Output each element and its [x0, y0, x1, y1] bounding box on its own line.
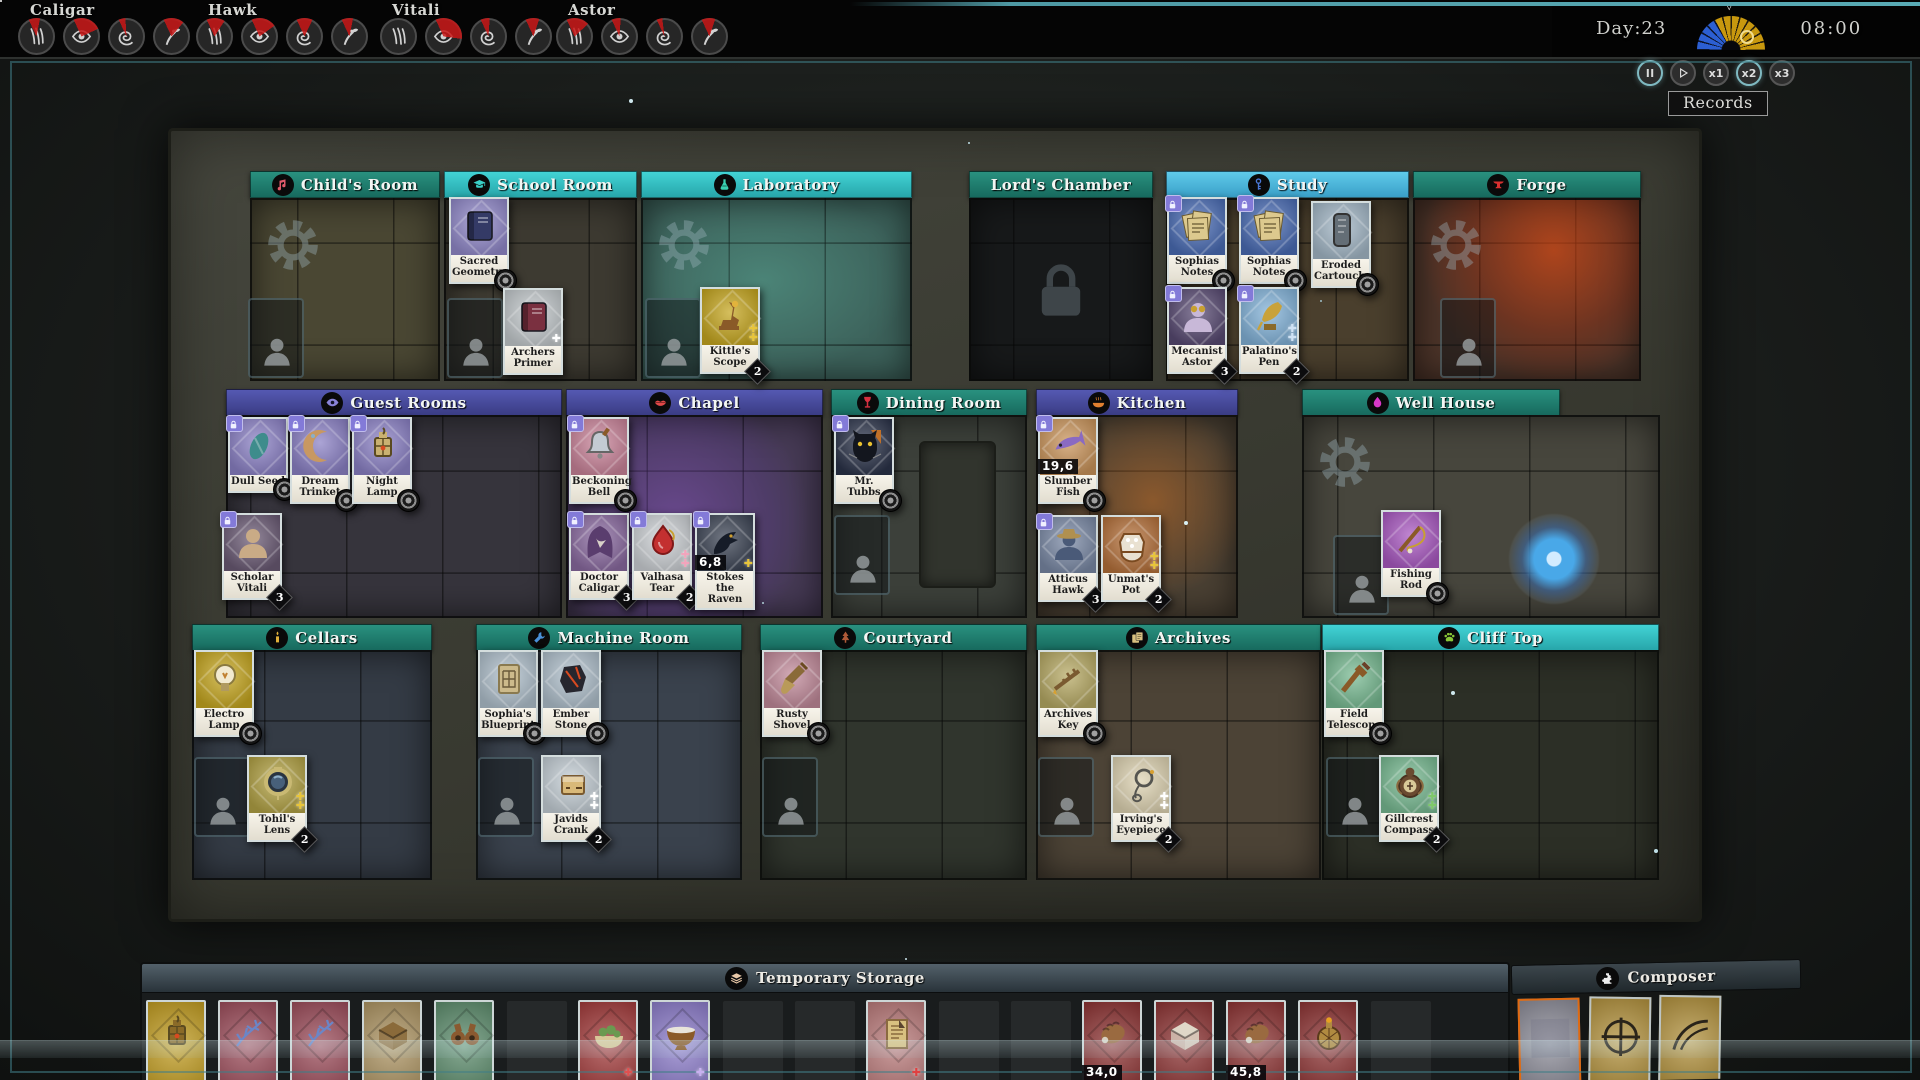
day-time-panel: Day:23 ▽ 08:00 [1552, 0, 1920, 57]
dial-badge-icon[interactable] [614, 489, 637, 512]
card-art-raven: 6,8✚ [695, 513, 755, 571]
game-screen: Child's RoomSchool RoomSacred Geometry✚A… [0, 0, 1920, 1080]
room-floor-lords-chamber[interactable] [969, 198, 1153, 381]
lock-icon [1237, 285, 1254, 302]
dial-badge-icon[interactable] [1426, 582, 1449, 605]
card-slumber-fish[interactable]: 19,6Slumber Fish [1038, 417, 1098, 504]
room-name: School Room [497, 176, 613, 194]
room-banner-kitchen[interactable]: Kitchen [1036, 389, 1238, 416]
card-night-lamp[interactable]: Night Lamp [352, 417, 412, 504]
torch-icon [331, 18, 368, 55]
lock-icon [350, 415, 367, 432]
plus-marks: ✚✚ [1288, 325, 1297, 343]
glowing-well [1504, 509, 1604, 609]
card-dream-trinket[interactable]: Dream Trinket [290, 417, 350, 504]
stat-meter [601, 18, 638, 55]
room-name: Laboratory [743, 176, 840, 194]
card-palatino-s-pen[interactable]: ✚✚Palatino's Pen2 [1239, 287, 1299, 374]
room-name: Well House [1396, 394, 1496, 412]
spiral-icon [470, 18, 507, 55]
card-ember-stone[interactable]: Ember Stone [541, 650, 601, 737]
archive-cards-icon [1126, 627, 1148, 649]
lantern-card[interactable] [146, 1000, 206, 1080]
stat-meter [470, 18, 507, 55]
room-name: Child's Room [301, 176, 418, 194]
room-name: Cliff Top [1467, 629, 1543, 647]
room-banner-dining-room[interactable]: Dining Room [831, 389, 1027, 416]
stat-meter [108, 18, 145, 55]
lips-icon [649, 392, 671, 414]
gear-watermark-icon [1425, 214, 1487, 276]
empty-storage-slot[interactable] [794, 1000, 856, 1080]
card-field-telescope[interactable]: Field Telescope [1324, 650, 1384, 737]
card-art-seed [228, 417, 288, 475]
stat-meter [331, 18, 368, 55]
spiral-icon [286, 18, 323, 55]
room-banner-forge[interactable]: Forge [1413, 171, 1641, 198]
wine-glass-icon [857, 392, 879, 414]
card-value: 6,8 [695, 555, 726, 570]
dial-badge-icon[interactable] [397, 489, 420, 512]
lock-icon [226, 415, 243, 432]
card-gillcrest-compass[interactable]: ✚✚Gillcrest Compass2 [1379, 755, 1439, 842]
composer-title: Composer [1627, 967, 1716, 987]
card-art-bell [569, 417, 629, 475]
stat-meter [18, 18, 55, 55]
composer-banner: Composer [1511, 959, 1802, 995]
stat-meter [63, 18, 100, 55]
branch-card[interactable] [290, 1000, 350, 1080]
room-name: Lord's Chamber [991, 176, 1132, 194]
card-tohil-s-lens[interactable]: ✚✚Tohil's Lens2 [247, 755, 307, 842]
lock-icon [832, 415, 849, 432]
spiral-icon [646, 18, 683, 55]
diagram-crosshair-card[interactable] [1588, 996, 1652, 1080]
lock-icon [630, 511, 647, 528]
room-name: Courtyard [863, 629, 952, 647]
dial-badge-icon[interactable] [586, 722, 609, 745]
person-slot[interactable] [834, 515, 890, 595]
top-accent-line [850, 2, 1920, 6]
room-banner-chapel[interactable]: Chapel [566, 389, 823, 416]
empty-storage-slot[interactable] [722, 1000, 784, 1080]
lock-icon [693, 511, 710, 528]
room-name: Kitchen [1117, 394, 1187, 412]
plus-marks: ✚ [552, 335, 561, 344]
seed-box-card[interactable] [362, 1000, 422, 1080]
room-banner-cliff-top[interactable]: Cliff Top [1322, 624, 1659, 651]
binoculars-card[interactable] [434, 1000, 494, 1080]
card-value: 19,6 [1038, 459, 1078, 474]
card-art-keytool [1038, 650, 1098, 708]
torch-icon [515, 18, 552, 55]
card-value: 45,8 [1226, 1065, 1266, 1080]
room-name: Cellars [295, 629, 357, 647]
plus-marks: ✚ [624, 1069, 633, 1078]
diagram-arc-card[interactable] [1658, 995, 1722, 1080]
person-slot[interactable] [1326, 757, 1382, 837]
package-card[interactable] [1154, 1000, 1214, 1080]
bowl-card[interactable]: ✚ [650, 1000, 710, 1080]
empty-storage-slot[interactable] [1010, 1000, 1072, 1080]
dial-badge-icon[interactable] [807, 722, 830, 745]
lock-icon [1237, 195, 1254, 212]
day-night-dial: ▽ [1688, 4, 1774, 54]
stat-meter [241, 18, 278, 55]
card-valhasa-tear[interactable]: ✚✚Valhasa Tear2 [632, 513, 692, 600]
card-art-lens: ✚✚ [247, 755, 307, 813]
watch-eye-icon [241, 18, 278, 55]
lock-icon [1036, 415, 1053, 432]
card-sophias-notes[interactable]: Sophias Notes [1167, 197, 1227, 284]
card-art-compass: ✚✚ [1379, 755, 1439, 813]
card-atticus-hawk[interactable]: Atticus Hawk3 [1038, 515, 1098, 602]
droplet-icon [1367, 392, 1389, 414]
torch-icon [153, 18, 190, 55]
person-slot[interactable] [447, 298, 503, 378]
empty-storage-slot[interactable] [938, 1000, 1000, 1080]
card-art-goggle-bust [1167, 287, 1227, 345]
card-art-bulb [194, 650, 254, 708]
card-mr-tubbs[interactable]: Mr. Tubbs [834, 417, 894, 504]
claws-icon [380, 18, 417, 55]
room-banner-cellars[interactable]: Cellars [192, 624, 432, 651]
card-art-lantern [352, 417, 412, 475]
soup-bowl-icon [1088, 392, 1110, 414]
claws-icon [196, 18, 233, 55]
card-art-tablet [1311, 201, 1371, 259]
room-name: Guest Rooms [350, 394, 466, 412]
card-archers-primer[interactable]: ✚Archers Primer [503, 288, 563, 375]
dial-badge-icon[interactable] [879, 489, 902, 512]
stat-meter [425, 18, 462, 55]
room-banner-archives[interactable]: Archives [1036, 624, 1321, 651]
empty-storage-slot[interactable] [1370, 1000, 1432, 1080]
plus-marks: ✚✚ [749, 325, 758, 343]
person-slot[interactable] [762, 757, 818, 837]
card-art-moon [290, 417, 350, 475]
room-name: Machine Room [557, 629, 689, 647]
card-art-bust [222, 513, 282, 571]
lock-icon [1165, 285, 1182, 302]
card-rusty-shovel[interactable]: Rusty Shovel [762, 650, 822, 737]
sun-icon [1740, 30, 1754, 44]
card-art-quill: ✚✚ [1239, 287, 1299, 345]
eye-icon [321, 392, 343, 414]
stat-meter [286, 18, 323, 55]
card-art-crank: ✚✚ [541, 755, 601, 813]
dial-badge-icon[interactable] [1083, 489, 1106, 512]
stat-meter [515, 18, 552, 55]
plus-marks: ✚✚ [590, 793, 599, 811]
room-banner-machine-room[interactable]: Machine Room [476, 624, 742, 651]
top-separator [0, 57, 1920, 59]
card-art-book [449, 197, 509, 255]
room-banner-study[interactable]: Study [1166, 171, 1409, 198]
card-art-hat-bust [1038, 515, 1098, 573]
plus-marks: ✚✚ [296, 793, 305, 811]
card-unmat-s-pot[interactable]: ✚✚Unmat's Pot2 [1101, 515, 1161, 602]
card-art-hood [569, 513, 629, 571]
card-value: 34,0 [1082, 1065, 1122, 1080]
dial-badge-icon[interactable] [1369, 722, 1392, 745]
plus-marks: ✚ [744, 560, 753, 569]
person-slot[interactable] [194, 757, 250, 837]
pause-button[interactable] [1637, 60, 1663, 86]
card-sophia-s-blueprint[interactable]: Sophia's Blueprint [478, 650, 538, 737]
card-art-stone [541, 650, 601, 708]
card-fishing-rod[interactable]: Fishing Rod [1381, 510, 1441, 597]
lock-icon [288, 415, 305, 432]
card-eroded-cartouche[interactable]: Eroded Cartouche [1311, 201, 1371, 288]
watch-eye-icon [425, 18, 462, 55]
gear-watermark-icon [262, 214, 324, 276]
grad-cap-icon [468, 174, 490, 196]
day-label: Day:23 [1596, 18, 1666, 39]
stat-meter [196, 18, 233, 55]
lock-icon [1036, 513, 1053, 530]
scroll-card[interactable]: ✚ [866, 1000, 926, 1080]
claws-icon [18, 18, 55, 55]
plus-marks: ✚✚ [1428, 793, 1437, 811]
anvil-icon [1487, 174, 1509, 196]
card-archives-key[interactable]: Archives Key [1038, 650, 1098, 737]
dial-badge-icon[interactable] [1356, 273, 1379, 296]
card-title: Archers Primer [503, 346, 563, 375]
character-stats [380, 18, 552, 55]
room-name: Study [1277, 176, 1327, 194]
dial-badge-icon[interactable] [1083, 722, 1106, 745]
card-art-scope: ✚✚ [700, 287, 760, 345]
grub-card[interactable]: 45,8 [1226, 1000, 1286, 1080]
lock-icon [220, 511, 237, 528]
gear-watermark-icon [653, 214, 715, 276]
person-slot[interactable] [478, 757, 534, 837]
room-banner-laboratory[interactable]: Laboratory [641, 171, 912, 198]
room-banner-courtyard[interactable]: Courtyard [760, 624, 1027, 651]
key-icon [1248, 174, 1270, 196]
flask-icon [714, 174, 736, 196]
card-scholar-vitali[interactable]: Scholar Vitali3 [222, 513, 282, 600]
tree-icon [834, 627, 856, 649]
plus-marks: ✚✚ [1160, 793, 1169, 811]
card-irving-s-eyepiece[interactable]: ✚✚Irving's Eyepiece2 [1111, 755, 1171, 842]
claws-icon [556, 18, 593, 55]
room-name: Forge [1516, 176, 1566, 194]
gear-watermark-icon [1314, 431, 1376, 493]
time-label: 08:00 [1800, 18, 1862, 39]
wrench-icon [528, 627, 550, 649]
room-banner-school-room[interactable]: School Room [444, 171, 637, 198]
grub-card[interactable]: 34,0 [1082, 1000, 1142, 1080]
card-art-book: ✚ [503, 288, 563, 346]
torch-icon [691, 18, 728, 55]
stat-meter [646, 18, 683, 55]
x1-button[interactable]: x1 [1703, 60, 1729, 86]
lock-icon [1165, 195, 1182, 212]
dining-table [919, 441, 996, 588]
music-note-icon [272, 174, 294, 196]
card-art-papers [1167, 197, 1227, 255]
room-name: Archives [1155, 629, 1231, 647]
lock-icon [567, 415, 584, 432]
card-sophias-notes[interactable]: Sophias Notes [1239, 197, 1299, 284]
card-art-fish: 19,6 [1038, 417, 1098, 475]
framed-card[interactable] [1518, 998, 1582, 1080]
lock-watermark-icon [1029, 258, 1093, 322]
character-stats [18, 18, 190, 55]
temporary-storage-panel: Temporary Storage ✚✚✚34,045,8 [140, 962, 1510, 1080]
card-stokes-the-raven[interactable]: 6,8✚Stokes the Raven [695, 513, 755, 610]
room-banner-guest-rooms[interactable]: Guest Rooms [226, 389, 562, 416]
person-slot[interactable] [248, 298, 304, 378]
top-bar: CaligarHawkVitaliAstor Day:23 ▽ 08:00 [0, 0, 1920, 59]
card-title: Stokes the Raven [695, 571, 755, 610]
character-name: Vitali [392, 1, 440, 19]
card-art-blueprint [478, 650, 538, 708]
person-slot[interactable] [1440, 298, 1496, 378]
character-name: Astor [568, 1, 615, 19]
candle-icon [266, 627, 288, 649]
branch-card[interactable] [218, 1000, 278, 1080]
x3-button[interactable]: x3 [1769, 60, 1795, 86]
room-banner-well-house[interactable]: Well House [1302, 389, 1560, 416]
character-name: Caligar [30, 1, 95, 19]
empty-storage-slot[interactable] [506, 1000, 568, 1080]
card-sacred-geometry[interactable]: Sacred Geometry [449, 197, 509, 284]
dial-badge-icon[interactable] [239, 722, 262, 745]
character-name: Hawk [208, 1, 257, 19]
jug-card[interactable] [1298, 1000, 1358, 1080]
play-button[interactable] [1670, 60, 1696, 86]
composer-panel: Composer [1511, 959, 1803, 1080]
card-art-cat [834, 417, 894, 475]
card-art-rod [1381, 510, 1441, 568]
card-beckoning-bell[interactable]: Beckoning Bell [569, 417, 629, 504]
card-art-monocle: ✚✚ [1111, 755, 1171, 813]
storage-banner: Temporary Storage [142, 964, 1508, 993]
person-slot[interactable] [645, 298, 701, 378]
stat-meter [556, 18, 593, 55]
room-banner-lords-chamber[interactable]: Lord's Chamber [969, 171, 1153, 198]
plus-marks: ✚ [696, 1069, 705, 1078]
card-dull-seed[interactable]: Dull Seed [228, 417, 288, 493]
paw-icon [1438, 627, 1460, 649]
card-electro-lamp[interactable]: Electro Lamp [194, 650, 254, 737]
records-button[interactable]: Records [1668, 91, 1768, 116]
card-art-shovel [762, 650, 822, 708]
character-stats [196, 18, 368, 55]
watch-eye-icon [63, 18, 100, 55]
card-doctor-caligar[interactable]: Doctor Caligar3 [569, 513, 629, 600]
card-javids-crank[interactable]: ✚✚Javids Crank2 [541, 755, 601, 842]
card-art-pot: ✚✚ [1101, 515, 1161, 573]
plus-marks: ✚✚ [681, 551, 690, 569]
plus-marks: ✚ [912, 1069, 921, 1078]
watch-eye-icon [601, 18, 638, 55]
card-art-tear: ✚✚ [632, 513, 692, 571]
dial-hub [1697, 16, 1765, 50]
room-banner-childs-room[interactable]: Child's Room [250, 171, 440, 198]
stat-meter [153, 18, 190, 55]
salad-card[interactable]: ✚ [578, 1000, 638, 1080]
character-stats [556, 18, 728, 55]
plus-marks: ✚✚ [1150, 553, 1159, 571]
room-name: Chapel [678, 394, 739, 412]
person-slot[interactable] [1038, 757, 1094, 837]
card-kittle-s-scope[interactable]: ✚✚Kittle's Scope2 [700, 287, 760, 374]
stat-meter [691, 18, 728, 55]
puzzle-icon [1596, 966, 1619, 989]
lock-icon [567, 511, 584, 528]
room-name: Dining Room [886, 394, 1002, 412]
spiral-icon [108, 18, 145, 55]
card-mecanist-astor[interactable]: Mecanist Astor3 [1167, 287, 1227, 374]
card-art-papers [1239, 197, 1299, 255]
storage-title: Temporary Storage [756, 969, 925, 987]
speed-controls: x1x2x3 [1637, 60, 1795, 86]
card-art-telescope [1324, 650, 1384, 708]
x2-button[interactable]: x2 [1736, 60, 1762, 86]
layers-icon [725, 967, 748, 990]
